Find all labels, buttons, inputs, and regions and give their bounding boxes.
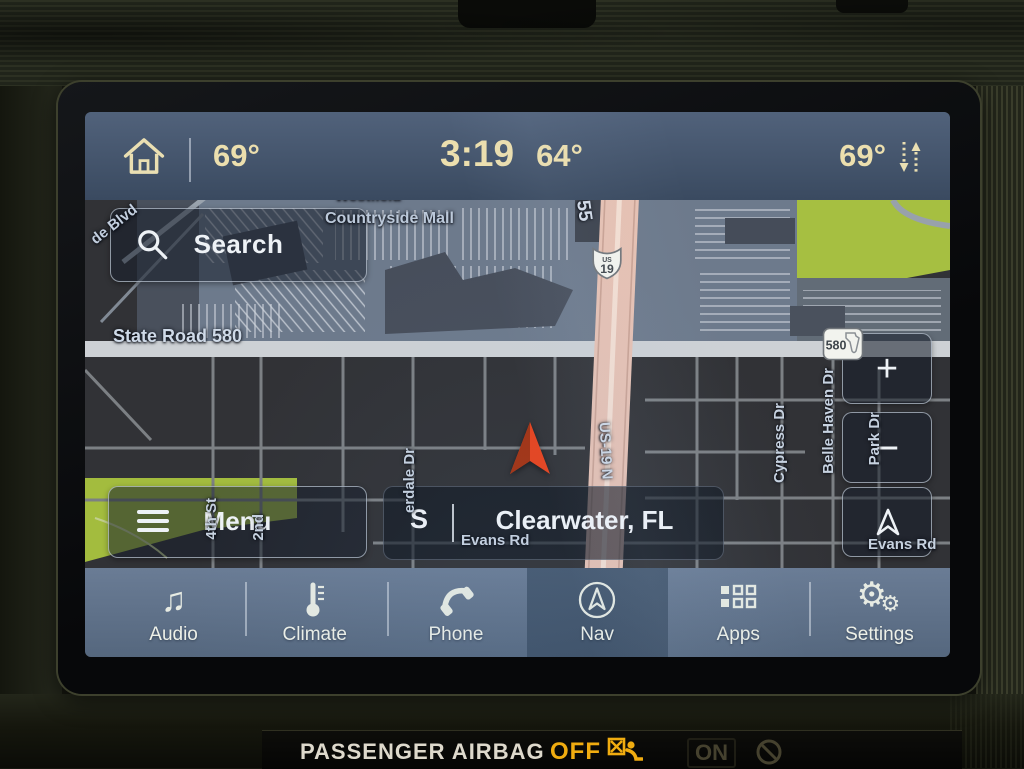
passenger-airbag-label: PASSENGER AIRBAG (300, 739, 545, 765)
tab-climate[interactable]: Climate (244, 568, 385, 657)
svg-text:19: 19 (600, 262, 614, 276)
status-bar: 69° 3:19 64° 69° (85, 112, 950, 201)
home-button[interactable] (119, 135, 169, 179)
statusbar-divider (189, 138, 191, 182)
map-label-cypress-dr: Cypress Dr (771, 403, 788, 483)
menu-button[interactable]: Menu (108, 486, 367, 558)
map-label-evans-rd-right: Evans Rd (868, 536, 936, 553)
tab-nav[interactable]: Nav (527, 568, 668, 657)
nav-compass-icon (576, 578, 618, 622)
menu-label: Menu (109, 506, 366, 537)
navbar-divider (387, 582, 389, 636)
navbar-divider (809, 582, 811, 636)
map-label-belle-haven-dr: Belle Haven Dr (820, 368, 837, 474)
search-label: Search (111, 229, 366, 260)
tab-settings[interactable]: ⚙⚙ Settings (809, 568, 950, 657)
map-label-us19-n: US-19 N (596, 422, 616, 480)
no-entry-icon (754, 737, 784, 767)
map-label-evans-rd-center: Evans Rd (461, 532, 529, 549)
navbar-divider (245, 582, 247, 636)
map-label-2nd-st: 2nd (250, 514, 267, 541)
map-label-westfield: Westfield (335, 200, 401, 204)
airflow-arrows-icon (895, 136, 925, 178)
phone-icon (436, 578, 476, 622)
tab-phone[interactable]: Phone (385, 568, 526, 657)
passenger-airbag-panel: PASSENGER AIRBAG OFF ON (262, 730, 962, 769)
airbag-on-indicator: ON (687, 738, 736, 768)
dashboard-trim-left (0, 86, 62, 694)
map-view[interactable]: Westfield Countryside Mall de Blvd State… (85, 200, 950, 568)
airbag-warning-icon (607, 737, 643, 767)
map-label-sr55: -55 (570, 200, 596, 223)
airbag-off-indicator: OFF (550, 738, 601, 766)
location-bar: S Clearwater, FL (383, 486, 724, 560)
outside-temp: 64° (536, 138, 583, 174)
driver-temp[interactable]: 69° (213, 138, 260, 174)
gears-icon: ⚙⚙ (856, 578, 902, 622)
clock-group: 3:19 64° (440, 133, 583, 175)
music-note-icon: ♫ (161, 578, 187, 622)
tab-audio[interactable]: ♫ Audio (103, 568, 244, 657)
infotainment-screen: 69° 3:19 64° 69° (85, 112, 950, 657)
apps-grid-icon (718, 578, 758, 622)
thermometer-icon (304, 578, 326, 622)
air-vent-small (836, 0, 908, 13)
dashboard-trim-right (976, 86, 1024, 694)
zoom-out-button[interactable]: − (842, 412, 932, 483)
passenger-temp[interactable]: 69° (820, 138, 886, 174)
map-label-park-dr: Park Dr (866, 412, 883, 465)
svg-text:580: 580 (826, 339, 847, 353)
tab-apps[interactable]: Apps (668, 568, 809, 657)
air-vent (458, 0, 596, 28)
bottom-nav-bar: ♫ Audio Climate (85, 568, 950, 657)
vehicle-position-arrow (505, 420, 555, 478)
map-label-state-road-580: State Road 580 (113, 326, 242, 347)
clock: 3:19 (440, 133, 514, 175)
us-19-shield: US 19 (590, 244, 624, 281)
map-label-countryside-mall: Countryside Mall (325, 210, 454, 228)
dashboard-trim-top (0, 0, 1024, 86)
map-label-erdale-dr: erdale Dr (401, 448, 418, 513)
fl-580-shield: 580 (822, 327, 864, 361)
home-icon (121, 135, 167, 177)
map-label-4th-st: 4th St (203, 498, 220, 540)
